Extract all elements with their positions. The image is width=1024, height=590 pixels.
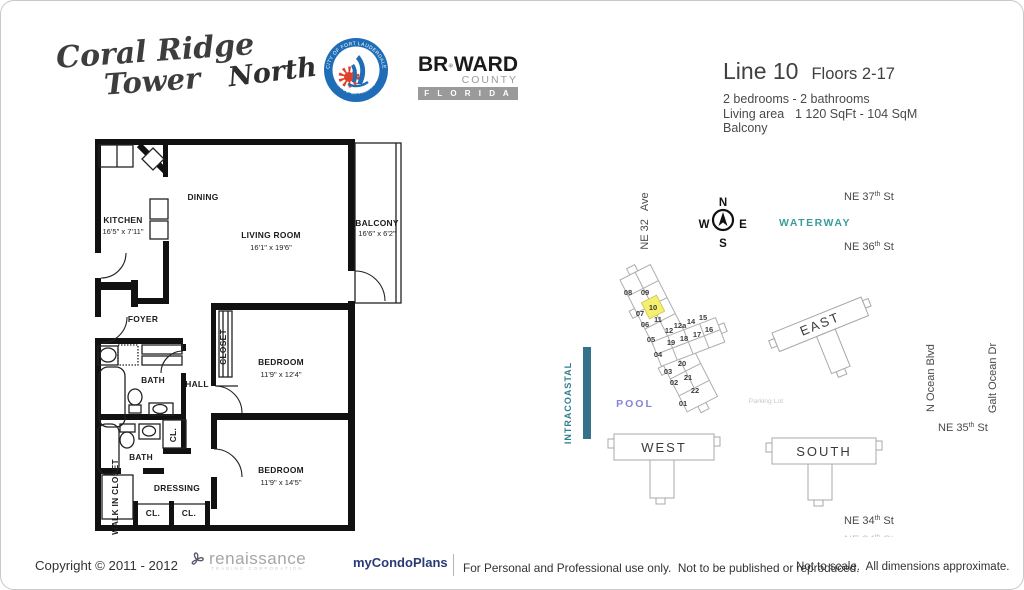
mycondoplans-text: myCondoPlans [353,555,448,570]
unit-08: 08 [624,288,632,297]
unit-20: 20 [678,359,686,368]
room-label-cl-a: CL. [146,508,160,518]
shelf [142,356,182,365]
condo-plan-sheet: Coral Ridge Tower North CITY OF FORT LAU… [0,0,1024,590]
unit-14: 14 [687,317,696,326]
room-dims-kitchen: 16'5" x 7'11" [102,227,143,236]
kitchen-appliance [150,199,168,219]
compass-s: S [719,238,727,250]
room-label-cl-b: CL. [182,508,196,518]
parking-lot-label: Parking Lot [749,398,783,405]
west-building: WEST [608,434,720,504]
broward-county-logo: BR WARD COUNTY F L O R I D A [418,53,518,100]
west-label: WEST [641,440,687,455]
kitchen-counter [99,145,133,167]
room-label-dining: DINING [187,192,218,202]
room-dims-living: 16'1" x 19'6" [250,243,292,252]
room-label-bedroom1: BEDROOM [258,357,304,367]
unit-18: 18 [680,334,688,343]
room-dims-bedroom1: 11'9" x 12'4" [260,370,301,379]
street-ne-34: NE 34thSt [844,515,894,527]
unit-04: 04 [654,350,663,359]
compass-e: E [739,219,747,231]
kitchen-door-arc [101,253,126,278]
unit-17: 17 [693,330,701,339]
room-label-bath1: BATH [141,375,165,385]
unit-07: 07 [636,309,644,318]
unit-09: 09 [641,288,649,297]
room-label-closet: CLOSET [218,329,228,365]
room-label-cl-upper: CL. [168,428,178,442]
compass-w: W [699,219,710,231]
intracoastal-bar [583,347,591,439]
room-dims-balcony: 16'6" x 6'2" [358,229,396,238]
unit-11: 11 [654,315,662,324]
room-dims-bedroom2: 11'9" x 14'5" [260,478,301,487]
unit-21: 21 [684,373,692,382]
bedroom2-door-arc [214,449,242,477]
room-label-dressing: DRESSING [154,483,200,493]
unit-03: 03 [664,367,672,376]
plan-fixtures [98,143,401,519]
site-map: NE 37thSt NE 36thSt NE 35thSt NE 34thSt … [556,176,1022,548]
living-area-label: Living area [723,107,795,122]
unit-10: 10 [649,303,657,312]
scale-note: Not to scale. All dimensions approximate… [796,561,1010,573]
pedestal-sink [128,389,142,405]
bedroom1-door-arc [215,386,242,413]
balcony-note: Balcony [723,121,917,136]
pool-label: POOL [616,398,654,410]
south-building: SOUTH [766,438,882,506]
copyright-text: Copyright © 2011 - 2012 [35,558,178,573]
waterway-label: WATERWAY [779,217,851,229]
vendor-subtitle: TRADING CORPORATION [211,566,306,571]
intracoastal-label: INTRACOASTAL [563,362,573,444]
compass-needle [719,212,728,226]
unit-22: 22 [691,386,699,395]
unit-info: Line 10 Floors 2-17 2 bedrooms - 2 bathr… [723,58,917,136]
vanity-counter [118,345,138,365]
unit-06: 06 [641,320,649,329]
room-label-walkin: WALK IN CLOSET [110,458,120,534]
broward-florida-bar: F L O R I D A [418,87,518,100]
unit-05: 05 [647,335,655,344]
room-label-foyer: FOYER [128,314,158,324]
floors-range: Floors 2-17 [811,65,894,84]
fort-lauderdale-seal-icon: CITY OF FORT LAUDERDALE VENICE OF AMERIC… [322,36,390,104]
broward-text-pre: BR [418,53,448,77]
unit-02: 02 [670,378,678,387]
south-label: SOUTH [796,444,852,459]
east-building: EAST [766,295,891,397]
bed-bath-count: 2 bedrooms - 2 bathrooms [723,92,917,107]
compass-n: N [719,197,727,209]
room-label-living: LIVING ROOM [241,230,301,240]
street-ne-36: NE 36thSt [844,241,894,253]
balcony-door-arc [355,271,385,301]
unit-01: 01 [679,399,687,408]
unit-16: 16 [705,325,713,334]
street-n-ocean-blvd: N Ocean Blvd [925,344,937,412]
street-ne-35: NE 35thSt [938,422,988,434]
unit-19: 19 [667,338,675,347]
room-label-balcony: BALCONY [355,218,399,228]
room-label-bedroom2: BEDROOM [258,465,304,475]
room-label-hall: HALL [185,379,209,389]
living-area-value: 1 120 SqFt - 104 SqM [795,107,917,121]
unit-15: 15 [699,313,707,322]
compass-icon: N S W E [699,197,748,250]
mycondoplans-logo: myCondoPlans [353,555,448,570]
room-label-bath2: BATH [129,452,153,462]
trefoil-icon [187,549,207,569]
floor-plan: KITCHEN 16'5" x 7'11" DINING LIVING ROOM… [93,137,405,537]
street-ne-37: NE 37thSt [844,191,894,203]
kitchen-appliance [150,221,168,239]
room-label-kitchen: KITCHEN [103,215,142,225]
unit-12: 12 [665,326,673,335]
street-ne-32-ave: NE 32Ave [639,192,651,249]
street-galt-ocean-dr: Galt Ocean Dr [987,343,999,414]
unit-12a: 12a [674,321,687,330]
line-number: Line 10 [723,58,798,85]
crop-mask [839,537,939,548]
footer-divider [453,554,454,576]
renaissance-logo: renaissance TRADING CORPORATION [187,549,306,571]
